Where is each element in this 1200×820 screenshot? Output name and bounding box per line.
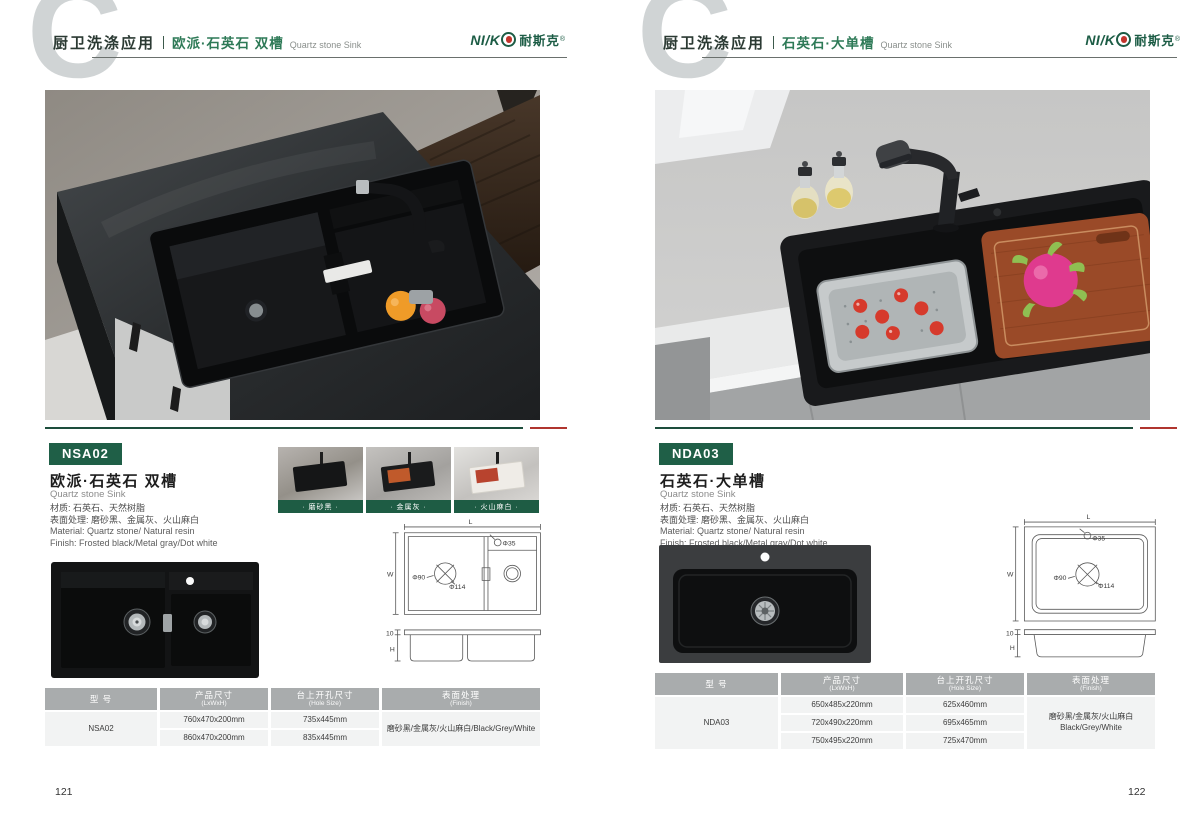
cutting-board bbox=[980, 212, 1150, 360]
dim-drain-inner-label: Φ90 bbox=[412, 574, 425, 581]
col-model-header: 型 号 bbox=[655, 673, 778, 695]
dim-width-label: W bbox=[387, 571, 394, 578]
brand-logo: NI/K耐斯克® bbox=[1085, 30, 1180, 49]
product-title-en: Quartz stone Sink bbox=[660, 489, 736, 500]
faucet-hole bbox=[186, 577, 194, 585]
swatch-image bbox=[278, 447, 363, 500]
finish-cell: 磨砂黑/金属灰/火山麻白/Black/Grey/White bbox=[382, 712, 540, 746]
overflow-cover bbox=[163, 614, 172, 632]
size-cell: 750x495x220mm bbox=[781, 733, 903, 749]
brand-logo-text: NI/K bbox=[470, 32, 500, 48]
dim-width-label: W bbox=[1007, 571, 1014, 578]
swatch-metal-gray: · 金属灰 · bbox=[366, 447, 451, 513]
trademark-symbol: ® bbox=[1175, 36, 1180, 43]
material-en: Material: Quartz stone/ Natural resin bbox=[660, 526, 828, 538]
swatch-frosted-black: · 磨砂黑 · bbox=[278, 447, 363, 513]
dim-length-label: L bbox=[1087, 514, 1091, 521]
spec-table: 型 号 产品尺寸(LxWxH) 台上开孔尺寸(Hole Size) 表面处理(F… bbox=[45, 688, 540, 746]
dim-height-label: H bbox=[390, 646, 395, 653]
photo-divider-green bbox=[655, 427, 1133, 429]
dim-drain-outer-label: Φ114 bbox=[449, 584, 465, 591]
dim-hole-label: Φ35 bbox=[1092, 535, 1105, 542]
dim-drain-outer-label: Φ114 bbox=[1098, 583, 1114, 590]
finish-cn: 表面处理: 磨砂黑、金属灰、火山麻白 bbox=[50, 515, 218, 527]
product-title-en: Quartz stone Sink bbox=[50, 489, 126, 500]
header-category: 厨卫洗涤应用 bbox=[663, 32, 765, 53]
trademark-symbol: ® bbox=[560, 36, 565, 43]
photo-divider-red bbox=[530, 427, 567, 429]
finish-cell: 磨砂黑/金属灰/火山麻白Black/Grey/White bbox=[1027, 697, 1155, 749]
dim-drain-inner-label: Φ90 bbox=[1053, 575, 1066, 582]
drain-right bbox=[194, 611, 216, 633]
size-cell: 650x485x220mm bbox=[781, 697, 903, 713]
swatch-label: · 磨砂黑 · bbox=[278, 500, 363, 513]
page-header: 厨卫洗涤应用 欧派·石英石 双槽 Quartz stone Sink bbox=[53, 32, 361, 53]
brand-logo-cn: 耐斯克 bbox=[1134, 30, 1175, 49]
header-divider bbox=[163, 36, 164, 49]
hole-cell: 735x445mm bbox=[271, 712, 379, 728]
catalog-page-left: C 厨卫洗涤应用 欧派·石英石 双槽 Quartz stone Sink NI/… bbox=[45, 0, 540, 820]
header-product-name-en: Quartz stone Sink bbox=[881, 40, 953, 50]
material-cn: 材质: 石英石、天然树脂 bbox=[50, 503, 218, 515]
finish-cn: 表面处理: 磨砂黑、金属灰、火山麻白 bbox=[660, 515, 828, 527]
product-code-badge: NSA02 bbox=[49, 443, 122, 465]
page-number-left: 121 bbox=[55, 786, 73, 798]
header-category: 厨卫洗涤应用 bbox=[53, 32, 155, 53]
cabinet-side bbox=[655, 337, 710, 420]
product-title: 石英石·大单槽 bbox=[660, 470, 766, 491]
product-title: 欧派·石英石 双槽 bbox=[50, 470, 178, 491]
photo-divider-red bbox=[1140, 427, 1177, 429]
spec-table: 型 号 产品尺寸(LxWxH) 台上开孔尺寸(Hole Size) 表面处理(F… bbox=[655, 673, 1155, 749]
product-photo-single-sink bbox=[655, 90, 1150, 420]
swatch-label: · 火山麻白 · bbox=[454, 500, 539, 513]
header-product-name: 石英石·大单槽 bbox=[782, 32, 875, 52]
brand-logo-cn: 耐斯克 bbox=[519, 30, 560, 49]
material-cn: 材质: 石英石、天然树脂 bbox=[660, 503, 828, 515]
brand-logo: NI/K耐斯克® bbox=[470, 30, 565, 49]
finish-swatches: · 磨砂黑 · · 金属灰 · · 火山麻白 · bbox=[278, 447, 540, 513]
dim-hole-label: Φ35 bbox=[503, 540, 516, 547]
hole-cell: 725x470mm bbox=[906, 733, 1024, 749]
hole-cell: 625x460mm bbox=[906, 697, 1024, 713]
product-topview-image bbox=[655, 543, 875, 665]
logo-o-icon bbox=[1116, 32, 1131, 47]
size-cell: 760x470x200mm bbox=[160, 712, 268, 728]
swatch-image bbox=[366, 447, 451, 500]
brand-logo-text: NI/K bbox=[1085, 32, 1115, 48]
col-hole-header: 台上开孔尺寸(Hole Size) bbox=[271, 688, 379, 710]
col-hole-header: 台上开孔尺寸(Hole Size) bbox=[906, 673, 1024, 695]
technical-drawing-single: L W Φ35 Φ90 Φ114 10 H bbox=[1005, 513, 1165, 663]
dim-edge-label: 10 bbox=[386, 631, 394, 638]
product-specs-text: 材质: 石英石、天然树脂 表面处理: 磨砂黑、金属灰、火山麻白 Material… bbox=[50, 503, 218, 549]
header-rule bbox=[92, 57, 567, 58]
header-rule bbox=[702, 57, 1177, 58]
col-size-header: 产品尺寸(LxWxH) bbox=[160, 688, 268, 710]
header-product-name: 欧派·石英石 双槽 bbox=[172, 32, 284, 52]
dim-edge-label: 10 bbox=[1006, 631, 1014, 638]
finish-en: Finish: Frosted black/Metal gray/Dot whi… bbox=[50, 538, 218, 550]
photo-divider-green bbox=[45, 427, 523, 429]
page-number-right: 122 bbox=[1128, 786, 1146, 798]
catalog-page-right: C 厨卫洗涤应用 石英石·大单槽 Quartz stone Sink NI/K耐… bbox=[655, 0, 1155, 820]
hole-cell: 695x465mm bbox=[906, 715, 1024, 731]
col-size-header: 产品尺寸(LxWxH) bbox=[781, 673, 903, 695]
size-cell: 720x490x220mm bbox=[781, 715, 903, 731]
logo-red-dot-icon bbox=[1121, 36, 1128, 43]
model-cell: NDA03 bbox=[655, 697, 778, 749]
dim-length-label: L bbox=[469, 519, 473, 526]
logo-red-dot-icon bbox=[506, 36, 513, 43]
swatch-image bbox=[454, 447, 539, 500]
size-cell: 860x470x200mm bbox=[160, 730, 268, 746]
dim-height-label: H bbox=[1010, 645, 1015, 652]
header-divider bbox=[773, 36, 774, 49]
logo-o-icon bbox=[501, 32, 516, 47]
hole-cell: 835x445mm bbox=[271, 730, 379, 746]
page-header: 厨卫洗涤应用 石英石·大单槽 Quartz stone Sink bbox=[663, 32, 952, 53]
col-model-header: 型 号 bbox=[45, 688, 157, 710]
product-photo-double-sink bbox=[45, 90, 540, 420]
drain-left bbox=[124, 609, 150, 635]
product-code-badge: NDA03 bbox=[659, 443, 733, 465]
header-product-name-en: Quartz stone Sink bbox=[290, 40, 362, 50]
technical-drawing-double: L W Φ35 Φ90 Φ114 10 H bbox=[385, 518, 555, 668]
material-en: Material: Quartz stone/ Natural resin bbox=[50, 526, 218, 538]
faucet-hole bbox=[761, 553, 770, 562]
col-finish-header: 表面处理(Finish) bbox=[382, 688, 540, 710]
product-topview-image bbox=[45, 560, 265, 682]
model-cell: NSA02 bbox=[45, 712, 157, 746]
drain-center bbox=[751, 597, 779, 625]
col-finish-header: 表面处理(Finish) bbox=[1027, 673, 1155, 695]
swatch-label: · 金属灰 · bbox=[366, 500, 451, 513]
swatch-dot-white: · 火山麻白 · bbox=[454, 447, 539, 513]
